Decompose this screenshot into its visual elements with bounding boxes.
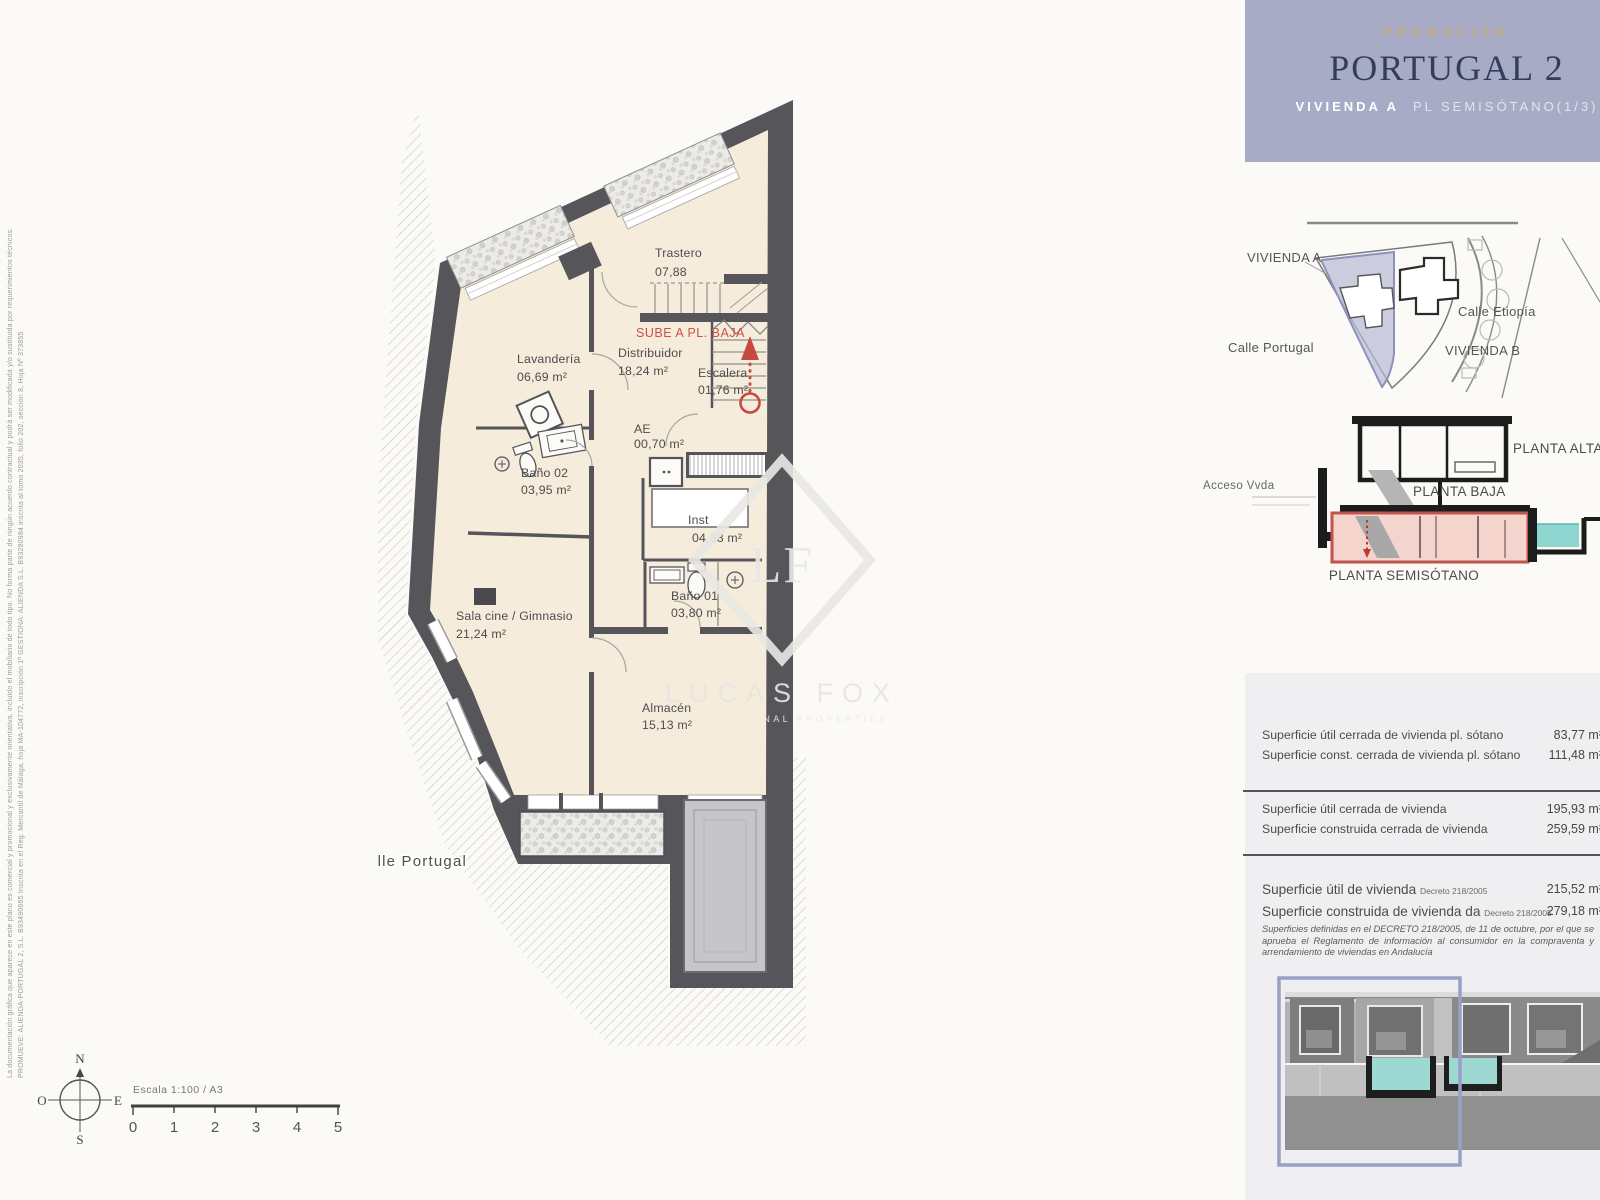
scale-tick-labels: 0 1 2 3 4 5 (129, 1119, 342, 1136)
room-label-lavanderia: Lavandería (517, 352, 581, 366)
table-row: Superficie útil cerrada de vivienda 195,… (1262, 802, 1600, 820)
row-value: 195,93 m² (1547, 802, 1600, 816)
row-value: 215,52 m² (1547, 882, 1600, 896)
site-label-vivienda-a: VIVIENDA A (1247, 250, 1322, 265)
room-label-bano01: Baño 01 (671, 589, 718, 603)
room-area-sala-cine: 21,24 m² (456, 627, 506, 641)
row-label: Superficie útil cerrada de vivienda (1262, 802, 1447, 816)
room-area-distribuidor: 18,24 m² (618, 364, 668, 378)
stair-note-sube: SUBE A PL. BAJA (636, 326, 745, 340)
unit-label: VIVIENDA A (1296, 99, 1399, 114)
scale-tick-5: 5 (334, 1119, 342, 1136)
legal-disclaimer-text: La documentación gráfica que aparece en … (7, 228, 14, 1078)
scale-label: Escala 1:100 / A3 (133, 1084, 223, 1096)
elevation-render (1248, 970, 1600, 1170)
table-divider (1243, 790, 1600, 792)
site-highlight-vivienda-a (1322, 252, 1394, 387)
room-label-sala-cine: Sala cine / Gimnasio (456, 609, 573, 623)
room-label-distribuidor: Distribuidor (618, 346, 683, 360)
site-label-vivienda-b: VIVIENDA B (1445, 343, 1520, 358)
watermark-name: LUCAS FOX (665, 678, 899, 708)
scale-bar: Escala 1:100 / A3 0 1 2 3 4 5 (125, 1075, 355, 1137)
scale-tick-4: 4 (293, 1119, 301, 1136)
room-area-bano01: 03,80 m² (671, 606, 721, 620)
room-area-escalera: 01,76 m² (698, 383, 748, 397)
floor-label: PL SEMISÓTANO(1/3) (1413, 99, 1598, 114)
section-semisotano-highlight (1332, 513, 1528, 562)
unit-floor-subtitle: VIVIENDA APL SEMISÓTANO(1/3) (1245, 99, 1600, 114)
compass-s: S (76, 1132, 83, 1147)
room-area-lavanderia: 06,69 m² (517, 370, 567, 384)
street-label: Calle Portugal (378, 853, 467, 870)
room-label-inst: Inst (688, 513, 709, 527)
room-label-escalera: Escalera (698, 366, 747, 380)
site-plan-diagram: VIVIENDA A Calle Etiopía Calle Portugal … (1190, 205, 1600, 420)
title-block: PROMOCIÓN PORTUGAL 2 VIVIENDA APL SEMISÓ… (1245, 0, 1600, 162)
row-decree: Decreto 218/2005 (1484, 908, 1552, 918)
row-decree: Decreto 218/2005 (1420, 886, 1488, 896)
table-row: Superficie construida cerrada de viviend… (1262, 822, 1600, 840)
compass-o: O (37, 1093, 46, 1108)
compass-e: E (114, 1093, 122, 1108)
row-label: Superficie útil de vivienda (1262, 882, 1416, 897)
room-label-ae: AE (634, 422, 651, 436)
scale-tick-1: 1 (170, 1119, 178, 1136)
table-divider (1243, 854, 1600, 856)
row-label: Superficie construida cerrada de viviend… (1262, 822, 1488, 836)
section-label-planta-alta: PLANTA ALTA (1513, 441, 1600, 456)
scale-tick-0: 0 (129, 1119, 137, 1136)
room-area-ae: 00,70 m² (634, 437, 684, 451)
watermark-initials: LF (750, 537, 815, 594)
table-footnote: Superficies definidas en el DECRETO 218/… (1262, 924, 1594, 959)
site-footprint-b (1400, 258, 1458, 314)
compass-n: N (75, 1051, 85, 1066)
elevation-buildings (1285, 992, 1600, 1150)
row-label: Superficie útil cerrada de vivienda pl. … (1262, 728, 1503, 742)
row-value: 83,77 m² (1554, 728, 1600, 742)
table-row: Superficie construida de vivienda da Dec… (1262, 904, 1600, 922)
row-value: 111,48 m² (1549, 748, 1600, 762)
section-pool (1528, 508, 1600, 562)
north-arrow-icon (48, 1068, 112, 1132)
row-label: Superficie const. cerrada de vivienda pl… (1262, 748, 1520, 762)
room-area-trastero: 07,88 (655, 265, 687, 279)
watermark-tagline: INTERNATIONAL PROPERTIES (676, 714, 889, 724)
legal-registry-text: PROMUEVE: ALIENDA-PORTUGAL 2, S.L. B9349… (18, 331, 25, 1078)
site-label-calle-portugal: Calle Portugal (1228, 340, 1314, 355)
section-label-acceso: Acceso Vvda (1203, 480, 1275, 492)
table-row: Superficie útil cerrada de vivienda pl. … (1262, 728, 1600, 746)
room-label-trastero: Trastero (655, 246, 702, 260)
page-title: PORTUGAL 2 (1245, 47, 1600, 89)
table-row: Superficie const. cerrada de vivienda pl… (1262, 748, 1600, 766)
room-label-bano02: Baño 02 (521, 466, 568, 480)
floor-plan-drawing: Trastero 07,88 Lavandería 06,69 m² Distr… (378, 88, 900, 1073)
table-row: Superficie útil de vivienda Decreto 218/… (1262, 882, 1600, 900)
compass-rose: N S O E (35, 1045, 135, 1150)
section-label-planta-baja: PLANTA BAJA (1413, 484, 1506, 499)
row-value: 279,18 m² (1547, 904, 1600, 918)
scale-tick-2: 2 (211, 1119, 219, 1136)
section-diagram: Acceso Vvda PLANTA ALTA PLANTA BAJA PLAN… (1180, 415, 1600, 593)
room-area-bano02: 03,95 m² (521, 483, 571, 497)
site-label-calle-etiopia: Calle Etiopía (1458, 304, 1536, 319)
scale-tick-3: 3 (252, 1119, 260, 1136)
row-value: 259,59 m² (1547, 822, 1600, 836)
row-label: Superficie construida de vivienda da (1262, 904, 1480, 919)
promotion-eyebrow: PROMOCIÓN (1245, 27, 1600, 39)
section-label-planta-semisotano: PLANTA SEMISÓTANO (1329, 568, 1479, 583)
